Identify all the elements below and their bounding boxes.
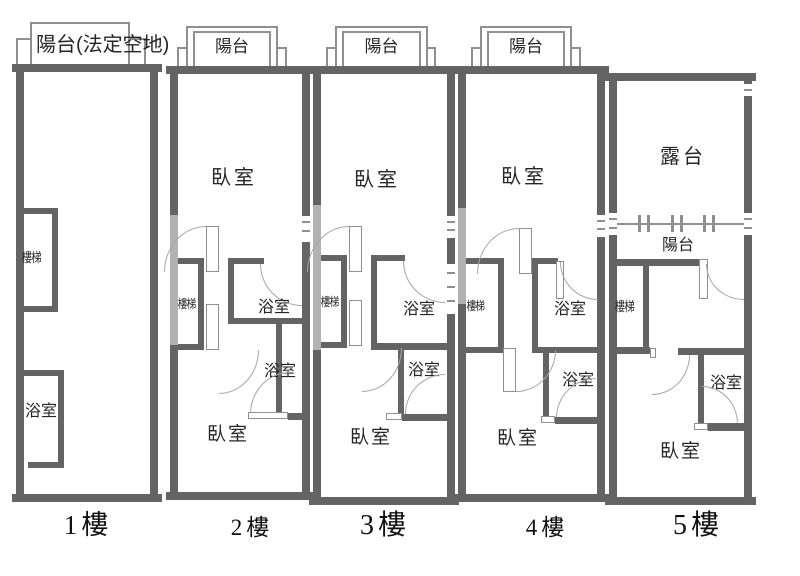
wall-segment xyxy=(609,259,700,266)
floor-caption: 5樓 xyxy=(658,503,738,543)
railing-post xyxy=(712,215,715,232)
wall-segment xyxy=(678,348,744,355)
room-label-bedroom: 臥室 xyxy=(643,441,719,463)
window-tick xyxy=(609,227,617,229)
wall-segment xyxy=(605,73,756,81)
window-tick xyxy=(609,218,617,220)
wall-segment xyxy=(708,423,744,431)
floor-plan-canvas: 陽台(法定空地) 樓梯 浴室 1樓 陽台 臥室 xyxy=(0,0,800,576)
window-tick xyxy=(744,227,752,229)
door-leaf xyxy=(694,423,708,430)
wall-segment xyxy=(609,347,650,354)
railing-post xyxy=(638,215,641,232)
door-arc xyxy=(706,264,744,300)
window-tick xyxy=(744,218,752,220)
railing-post xyxy=(647,215,650,232)
wall-segment xyxy=(643,266,649,348)
floor-plan-5: 露台 陽台 樓梯 浴室 臥室 5樓 xyxy=(0,0,800,576)
wall-segment xyxy=(744,81,752,505)
room-label-balcony: 陽台 xyxy=(640,237,716,255)
railing-post xyxy=(671,215,674,232)
window-gap xyxy=(744,213,752,235)
room-label-terrace: 露台 xyxy=(645,146,721,169)
window-gap xyxy=(609,213,617,235)
door-arc xyxy=(652,355,690,395)
railing-post xyxy=(703,215,706,232)
room-label-stairs: 樓梯 xyxy=(610,300,639,315)
wall-segment xyxy=(609,81,617,505)
window-tick xyxy=(744,89,752,91)
railing-post xyxy=(680,215,683,232)
